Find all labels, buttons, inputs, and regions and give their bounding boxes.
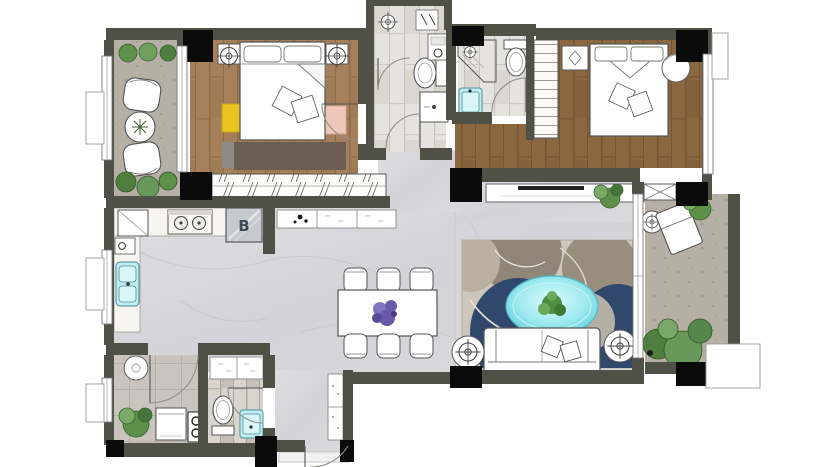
- double-bed-icon: [240, 42, 325, 140]
- bed-end-rug: [234, 142, 346, 170]
- kitchen-sink-icon: [116, 262, 139, 306]
- cabinets-icon: [210, 357, 263, 379]
- cooktop-icon: [168, 210, 212, 234]
- basin-icon: [124, 356, 148, 380]
- vanity-icon: [420, 92, 448, 122]
- toilet-icon: [504, 40, 528, 76]
- double-bed-icon: [590, 44, 668, 136]
- washbasin-icon: [240, 410, 263, 438]
- cabinet-b-icon: B: [226, 208, 262, 242]
- fridge-icon: [118, 210, 148, 236]
- floor-plan-canvas: B: [0, 0, 835, 467]
- armchair-icon: [122, 77, 162, 114]
- floor-plan-svg: B: [0, 0, 835, 467]
- closet-icon: [534, 40, 558, 138]
- toilet-icon: [414, 58, 448, 88]
- washing-machine-icon: [156, 408, 186, 440]
- dining-chairs-top: [344, 268, 433, 292]
- planter-icon: [119, 43, 176, 62]
- water-heater-icon: [428, 34, 448, 60]
- round-table-icon: [125, 112, 155, 142]
- nightstand-icon: [562, 46, 588, 70]
- small-appliance-icon: [115, 238, 135, 254]
- sofa-icon: [484, 328, 600, 374]
- dining-chairs-bottom: [344, 334, 433, 358]
- ac-platform: [706, 344, 760, 388]
- bedroom-2: [534, 40, 690, 138]
- washbasin-icon: [459, 88, 482, 116]
- planter-box-icon: [644, 184, 676, 200]
- pink-bench: [324, 106, 346, 134]
- shoe-cabinet-icon: [328, 374, 343, 440]
- cabinet-b-label: B: [238, 217, 249, 235]
- sideboard-icon: [277, 210, 396, 228]
- oval-coffee-table-icon: [506, 276, 598, 336]
- flower-centerpiece-icon: [372, 300, 397, 326]
- shower-fixture: [416, 10, 438, 30]
